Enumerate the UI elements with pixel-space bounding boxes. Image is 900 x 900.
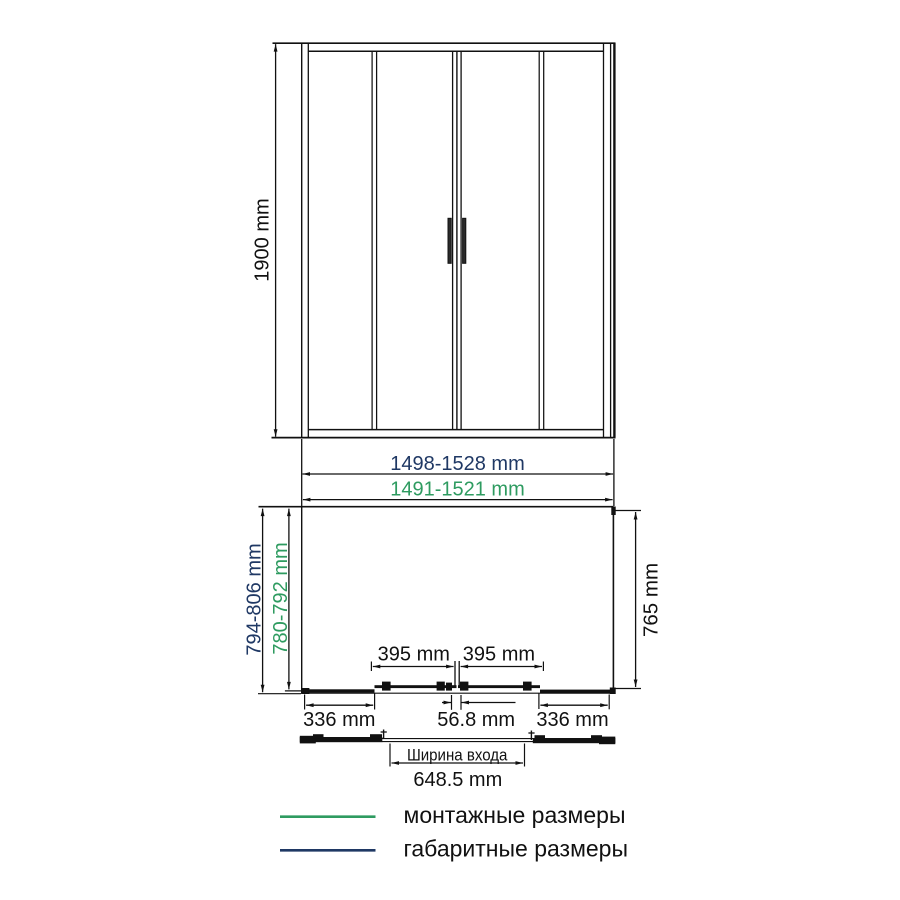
svg-text:395 mm: 395 mm — [378, 643, 450, 665]
svg-text:габаритные размеры: габаритные размеры — [404, 836, 629, 862]
svg-text:1498-1528 mm: 1498-1528 mm — [390, 453, 525, 475]
svg-text:794-806 mm: 794-806 mm — [243, 543, 265, 655]
svg-text:1900 mm: 1900 mm — [251, 198, 273, 281]
svg-text:Ширина входа: Ширина входа — [407, 747, 508, 765]
svg-text:1491-1521 mm: 1491-1521 mm — [390, 479, 525, 501]
svg-text:780-792 mm: 780-792 mm — [270, 542, 292, 654]
svg-text:56.8 mm: 56.8 mm — [437, 709, 515, 731]
svg-text:336 mm: 336 mm — [303, 709, 375, 731]
svg-text:монтажные размеры: монтажные размеры — [404, 802, 626, 828]
svg-text:336 mm: 336 mm — [536, 709, 608, 731]
svg-text:765 mm: 765 mm — [639, 563, 662, 637]
svg-text:395 mm: 395 mm — [463, 643, 535, 665]
svg-text:648.5 mm: 648.5 mm — [413, 769, 502, 791]
